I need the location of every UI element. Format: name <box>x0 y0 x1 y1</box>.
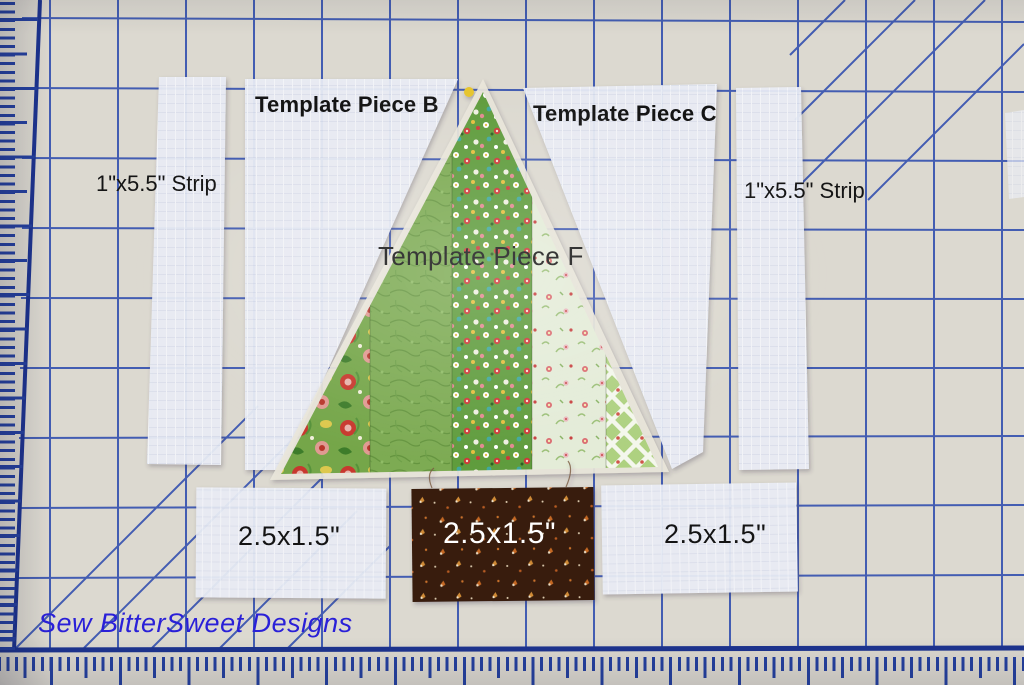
strip-left-fabric <box>147 77 226 465</box>
label-strip-left: 1"x5.5" Strip <box>96 172 217 196</box>
strip-right-fabric <box>736 87 809 470</box>
label-template-piece-c: Template Piece C <box>533 102 717 126</box>
label-rect-bottom-left: 2.5x1.5" <box>238 522 340 552</box>
label-template-piece-b: Template Piece B <box>255 93 439 117</box>
label-strip-right: 1"x5.5" Strip <box>744 179 865 203</box>
watermark-text: Sew BitterSweet Designs <box>38 608 353 639</box>
quilt-layout-photo: Template Piece B Template Piece C Templa… <box>0 0 1024 685</box>
label-rect-bottom-right: 2.5x1.5" <box>664 520 766 550</box>
right-edge-fabric-sliver <box>1005 110 1024 199</box>
label-rect-bottom-center: 2.5x1.5" <box>443 517 556 550</box>
fabric-pieces <box>0 0 1024 685</box>
tree-apex-pin <box>464 87 474 97</box>
label-template-piece-f: Template Piece F <box>378 242 584 271</box>
